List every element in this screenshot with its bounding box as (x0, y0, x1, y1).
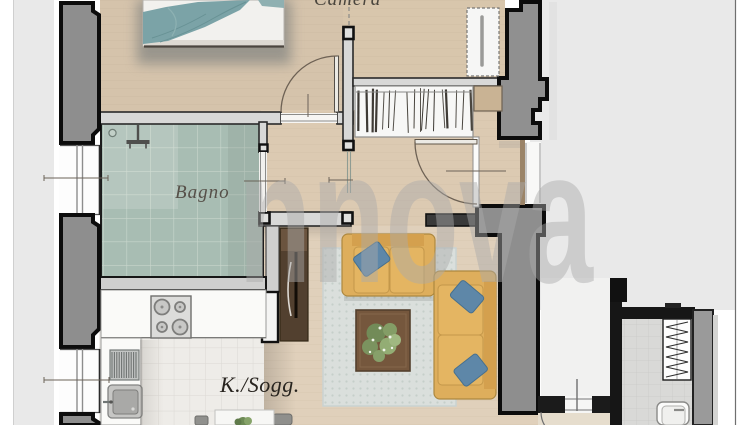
svg-text:K./Sogg.: K./Sogg. (219, 372, 300, 397)
svg-text:nnova: nnova (238, 112, 594, 323)
svg-text:Bagno: Bagno (175, 182, 230, 203)
svg-text:Camera: Camera (314, 0, 381, 10)
